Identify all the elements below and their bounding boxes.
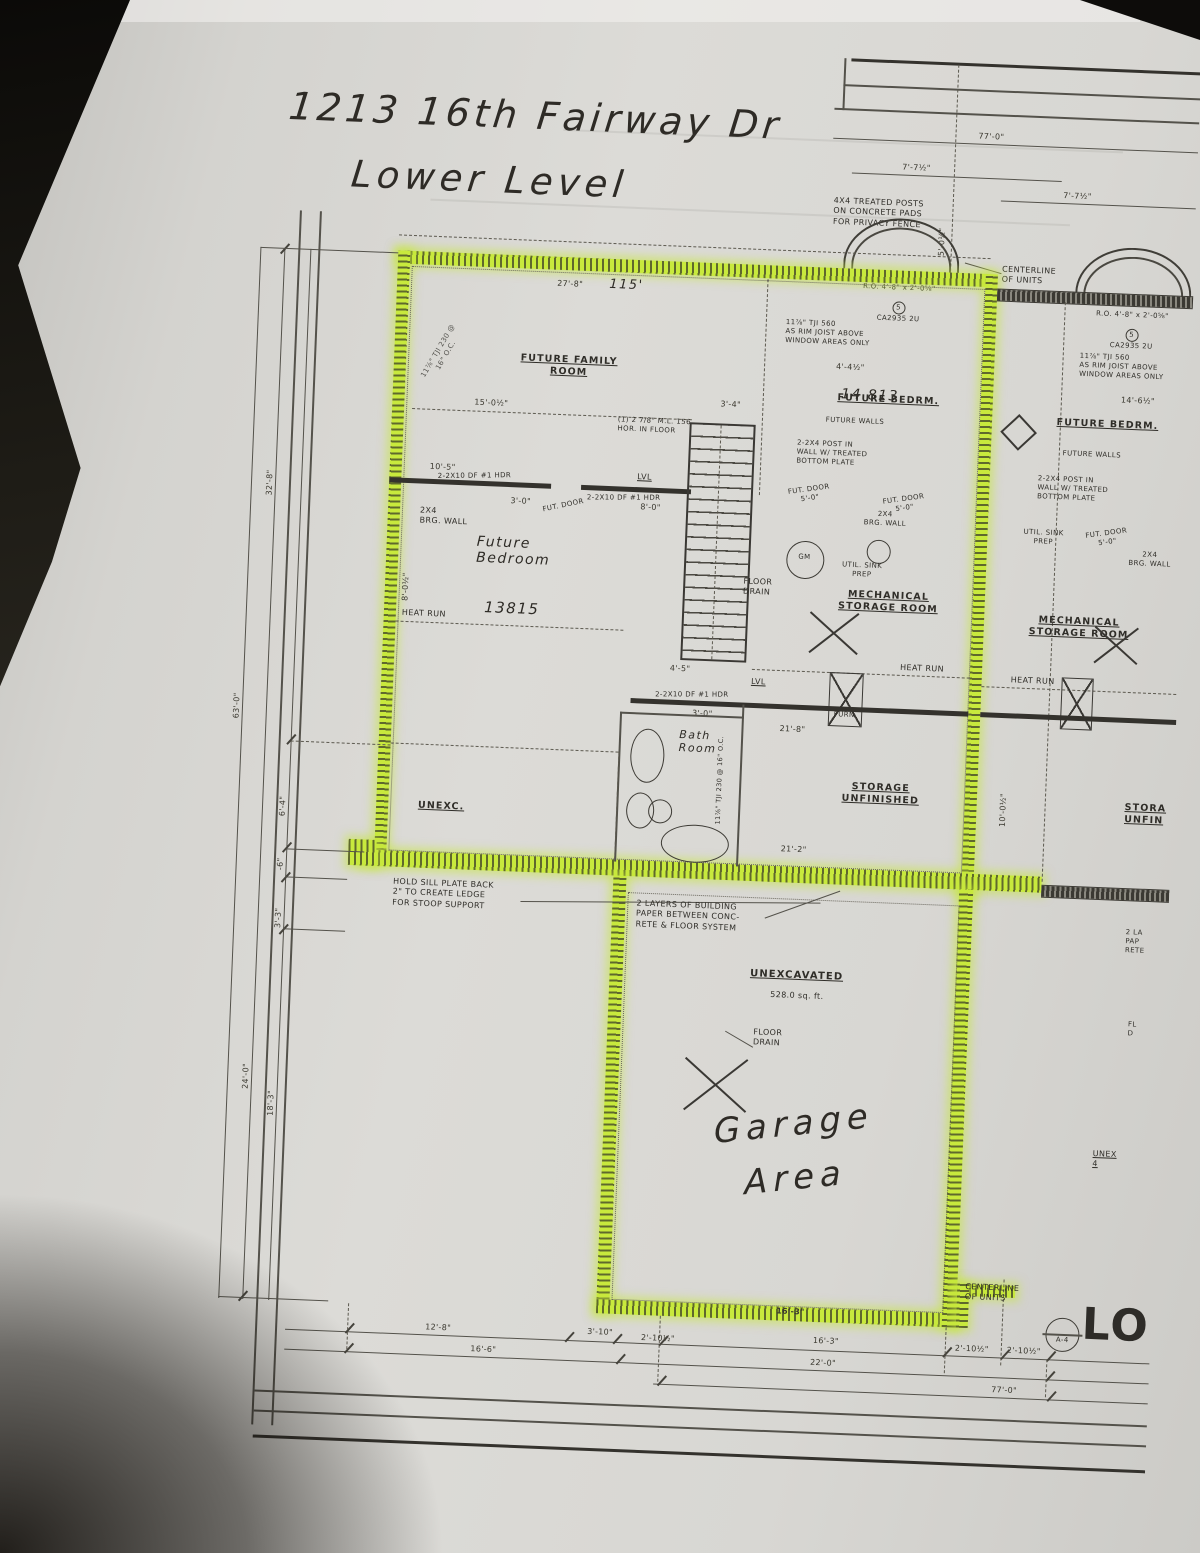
furnace-box-right [1060, 677, 1094, 730]
note-rim-joist-right: 11⅞" TJI 560 AS RIM JOIST ABOVE WINDOW A… [1079, 352, 1200, 384]
handwritten-13815: 13815 [484, 598, 540, 618]
note-post-wall-right: 2-2X4 POST IN WALL W/ TREATED BOTTOM PLA… [1037, 474, 1133, 505]
note-building-paper-cut: 2 LA PAP RETE [1125, 928, 1171, 957]
dim-12-8: 12'-8" [425, 1322, 451, 1332]
note-header-left: 2-2X10 DF #1 HDR [419, 471, 529, 481]
note-floor-drain-left: FLOOR DRAIN [743, 576, 784, 598]
dim-77-0-top: 77'-0" [978, 132, 1004, 142]
note-header-3: 2-2X10 DF #1 HDR [637, 690, 747, 700]
stair-center-line [711, 425, 721, 659]
note-centerline-bottom: CENTERLINE OF UNITS [965, 1282, 1036, 1306]
room-label-storage-right-cut: STORA UNFIN [1124, 802, 1180, 829]
note-lvl: LVL [629, 472, 659, 484]
handwritten-future-bedroom: Future Bedroom [476, 534, 597, 571]
dim-16-6: 16'-6" [470, 1344, 496, 1354]
note-building-paper: 2 LAYERS OF BUILDING PAPER BETWEEN CONC-… [635, 898, 766, 934]
note-fut-door-right: FUT. DOOR 5'-0" [1078, 525, 1135, 550]
wall-right-unit-bottom [1041, 885, 1169, 903]
gas-meter-label: GM [794, 553, 814, 563]
handwritten-address-title: 1213 16th Fairway Dr [287, 84, 811, 149]
section-marker-diamond [1000, 414, 1037, 451]
note-floor-drain-cut: FL D [1127, 1020, 1163, 1040]
sheet-top-line [851, 58, 1200, 75]
dim-3-0: 3'-0" [510, 496, 531, 506]
dim-16-3-wall: 16'-3" [776, 1306, 805, 1316]
note-future-walls-right: FUTURE WALLS [1047, 449, 1137, 462]
note-brg-wall: 2X4 BRG. WALL [419, 505, 490, 529]
dim-3-10: 3'-10" [587, 1327, 613, 1337]
sheet-top-line [843, 84, 1200, 100]
dim-27-8: 27'-8" [557, 279, 583, 289]
dim-10-5: 10'-5" [430, 462, 456, 472]
dim-6-4: 6'-4" [278, 776, 289, 816]
dim-10-0: 10'-0½" [998, 767, 1009, 827]
room-label-mech-storage-left: MECHANICAL STORAGE ROOM [830, 588, 946, 617]
note-lvl-2: LVL [743, 677, 773, 689]
dim-2-10b: 2'-10½" [955, 1344, 989, 1354]
room-label-future-bedrm-right: FUTURE BEDRM. [1050, 417, 1165, 434]
note-hold-sill-plate: HOLD SILL PLATE BACK 2" TO CREATE LEDGE … [392, 877, 523, 913]
dim-7-7: 7'-7½" [902, 163, 931, 173]
dim-extension [657, 1316, 661, 1382]
window-ro: R.O. 4'-8" x 2'-0⅝" [1096, 310, 1169, 321]
dim-line-row3 [653, 1384, 1148, 1405]
note-util-sink-right: UTIL. SINK PREP [1013, 527, 1074, 548]
sheet-top-line [834, 108, 1199, 124]
note-util-sink-left: UTIL. SINK PREP [832, 560, 893, 581]
dim-14-6: 14'-6½" [1121, 395, 1155, 405]
dim-7-7: 7'-7½" [1063, 191, 1092, 201]
blueprint-sheet: 1213 16th Fairway Dr Lower Level 77'-0" … [0, 0, 1200, 1553]
scan-streak [430, 199, 1070, 227]
note-unexcavated-cut: UNEX 4 [1092, 1149, 1153, 1172]
dim-77-0-bottom: 77'-0" [991, 1385, 1017, 1395]
note-post-wall-left: 2-2X4 POST IN WALL W/ TREATED BOTTOM PLA… [796, 439, 892, 470]
sheet-border-line [255, 1390, 1147, 1427]
dim-line [833, 138, 1198, 154]
window-number-circle: 5 [1125, 329, 1139, 343]
dim-line [852, 173, 1062, 182]
dim-2-10c: 2'-10½" [1007, 1346, 1041, 1356]
staircase [680, 422, 755, 662]
sheet-border-line [251, 210, 301, 1424]
handwritten-115: 115' [609, 277, 644, 293]
note-ml-header: (1) 2 7/8" M.L. 156 HOR. IN FLOOR [617, 415, 713, 437]
dim-3-4: 3'-4" [720, 399, 741, 409]
dim-line-left-outer [218, 247, 261, 1298]
dim-8-0: 8'-0" [640, 502, 661, 512]
handwritten-level-title: Lower Level [349, 153, 713, 210]
title-block-lo-text: LO [1081, 1299, 1151, 1353]
scanned-floor-plan-page: 1213 16th Fairway Dr Lower Level 77'-0" … [0, 0, 1200, 1553]
note-centerline-top: CENTERLINE OF UNITS [1002, 265, 1073, 289]
dim-line-left-inner [268, 249, 311, 1300]
dim-line [1001, 201, 1196, 210]
dim-extension-h [291, 740, 391, 745]
room-label-storage-left: STORAGE UNFINISHED [823, 780, 939, 809]
handwritten-bath-room: Bath Room [678, 728, 739, 756]
note-brg-wall-2: 2X4 BRG. WALL [850, 509, 921, 530]
room-label-mech-storage-right: MECHANICAL STORAGE ROOM [1023, 614, 1134, 643]
dim-m6: -6" [275, 840, 285, 870]
marker-a4-label: A-4 [1052, 1335, 1072, 1345]
right-unit-line [1042, 302, 1066, 882]
dim-16-3-row: 16'-3" [813, 1336, 839, 1346]
dim-21-8: 21'-8" [779, 724, 805, 734]
dim-21-2: 21'-2" [781, 844, 807, 854]
window-model: CA2935 2U [1110, 341, 1153, 351]
dim-extension-h [218, 1296, 328, 1301]
dim-15-0: 15'-0½" [474, 398, 508, 408]
dim-4-5: 4'-5" [670, 664, 691, 674]
dim-22-0: 22'-0" [810, 1358, 836, 1368]
detail-marker-a4: A-4 [1045, 1317, 1080, 1352]
note-heat-run-right: HEAT RUN [997, 675, 1067, 688]
note-brg-wall-right: 2X4 BRG. WALL [1114, 549, 1185, 570]
dim-3-3: 3'-3" [273, 892, 283, 928]
note-floor-drain-garage: FLOOR DRAIN [753, 1027, 799, 1050]
